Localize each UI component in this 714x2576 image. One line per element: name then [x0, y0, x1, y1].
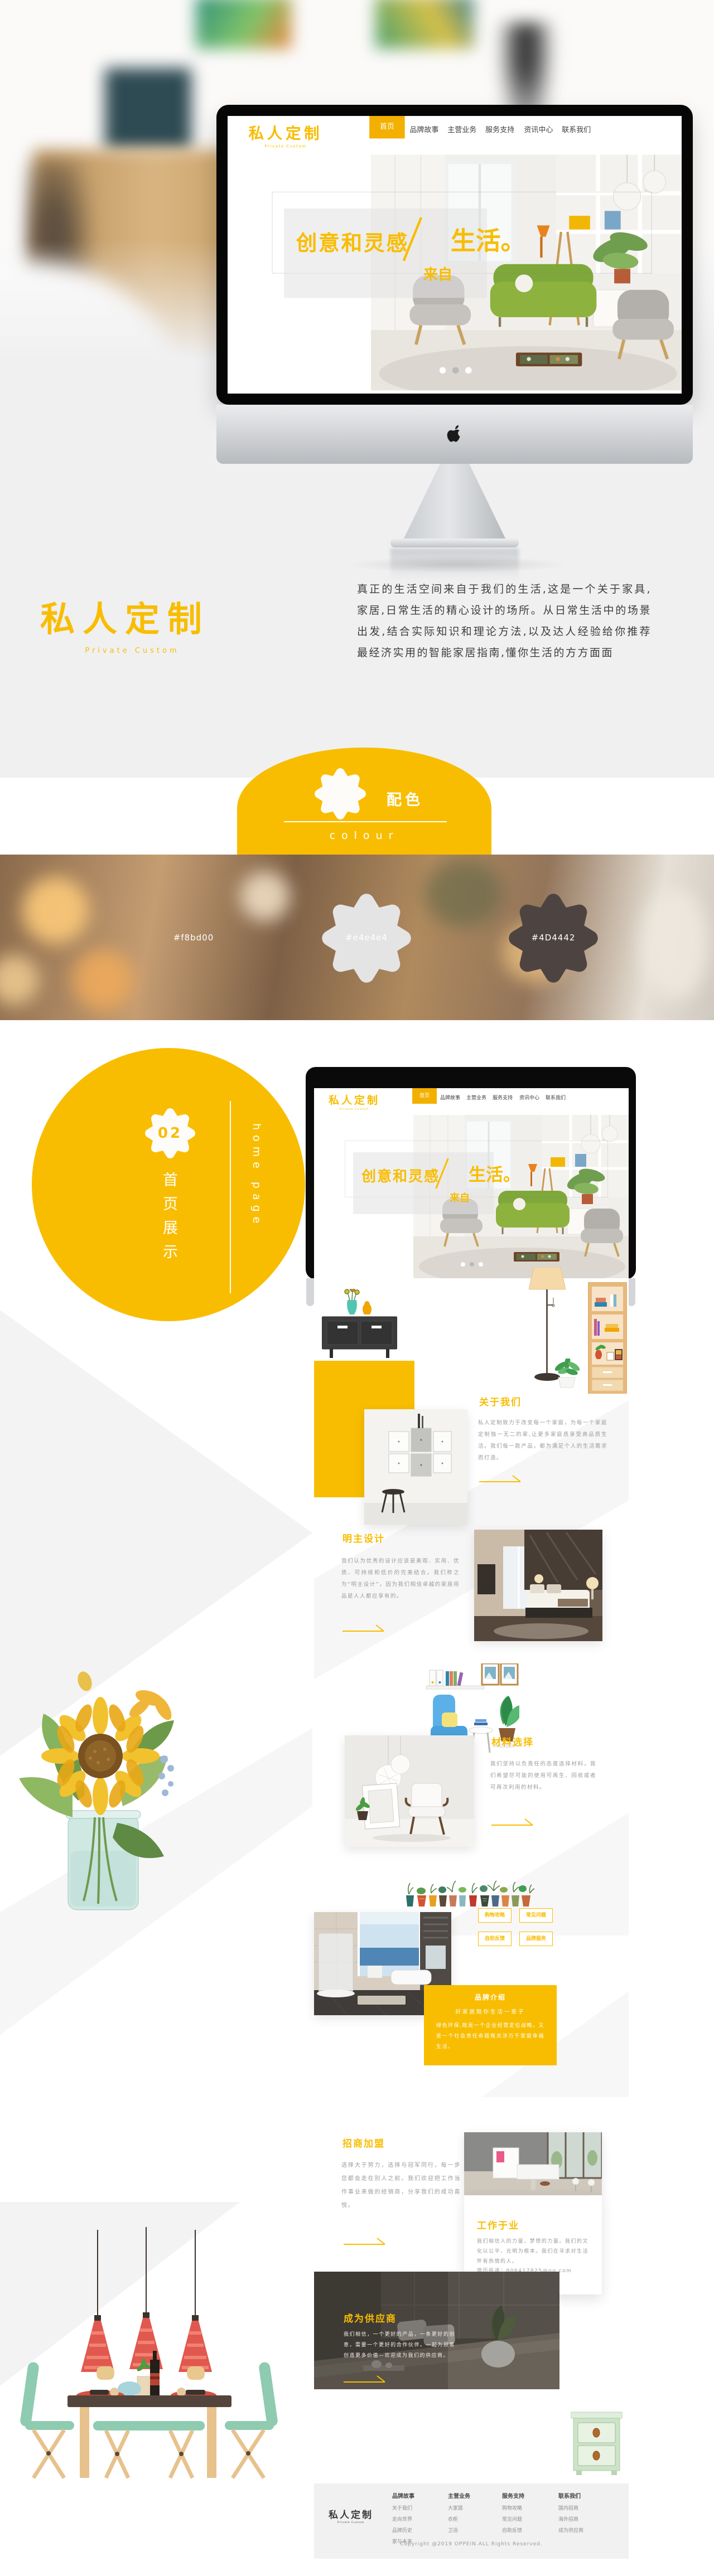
section-02-divider — [230, 1101, 231, 1293]
site-logo-text: 私人定制 — [329, 1092, 380, 1107]
footer-column-main-business: 主营业务 大家居 衣柜 卫浴 — [448, 2491, 470, 2536]
materials-photo — [345, 1735, 474, 1847]
nav-item-main-business[interactable]: 主营业务 — [466, 1094, 486, 1101]
sunflower-jar-illustration — [6, 1650, 178, 1929]
footer-link[interactable]: 卫浴 — [448, 2525, 470, 2536]
arrow-icon[interactable] — [342, 1624, 385, 1632]
footer-link[interactable]: 走向世界 — [392, 2514, 414, 2525]
hero-headline-part3: 生活。 — [469, 1161, 520, 1186]
footer-link[interactable]: 品牌历史 — [392, 2525, 414, 2536]
brand-intro-title: 品牌介绍 — [424, 1992, 557, 2002]
mock-site-top: 私人定制 Private Custom 首页 品牌故事 主营业务 服务支持 资讯… — [314, 1088, 629, 1281]
about-title: 关于我们 — [479, 1394, 522, 1408]
footer-column-title: 服务支持 — [502, 2491, 524, 2500]
arrow-icon[interactable] — [479, 1475, 522, 1483]
footer-logo-text: 私人定制 — [329, 2507, 373, 2521]
design-title: 明主设计 — [342, 1531, 385, 1545]
footer-link[interactable]: 成为供应商 — [558, 2525, 583, 2536]
footer-logo-subtext: Private Custom — [329, 2521, 373, 2524]
site-logo-subtext: Private Custom — [329, 1108, 380, 1111]
nav-item-news-center[interactable]: 资讯中心 — [519, 1094, 539, 1101]
footer-link[interactable]: 衣柜 — [448, 2514, 470, 2525]
homepage-mockup: 私人定制 Private Custom 首页 品牌故事 主营业务 服务支持 资讯… — [314, 1088, 629, 2559]
footer-copyright: Copyright @2019 OPPEIN.ALL Rights Reserv… — [314, 2541, 629, 2547]
arrow-icon[interactable] — [344, 2238, 386, 2245]
join-text: 选择大于努力，选择与冠军同行，每一步您都会走在别人之前。我们欢迎把工作当作事业来… — [341, 2159, 461, 2213]
site-footer: 私人定制 Private Custom 品牌故事 关于我们 走向世界 品牌历史 … — [314, 2483, 629, 2559]
supplier-section: 成为供应商 我们相信，一个更好的产品，一条更好的创意，需要一个更好的合作伙伴。一… — [314, 2272, 559, 2389]
brand-intro-subtitle: 好家居陪你生活一辈子 — [424, 2007, 557, 2015]
footer-column-title: 品牌故事 — [392, 2491, 414, 2500]
footer-logo[interactable]: 私人定制 Private Custom — [329, 2507, 373, 2524]
footer-link[interactable]: 自助反馈 — [502, 2525, 524, 2536]
nav-item-service-support[interactable]: 服务支持 — [493, 1094, 513, 1101]
footer-column-title: 联系我们 — [558, 2491, 583, 2500]
footer-column-service-support: 服务支持 购物攻略 常见问题 自助反馈 — [502, 2491, 524, 2536]
design-text: 我们认为优秀的设计应该是美观、实用、优质、可持续和低价的完美结合。我们称之为“明… — [341, 1555, 460, 1602]
work-text: 我们相信人的力量，梦想的力量。我们的文化以公平、光明为根本。我们在寻求对生活怀有… — [477, 2237, 588, 2267]
arrow-icon[interactable] — [491, 1818, 534, 1826]
footer-link[interactable]: 大家居 — [448, 2503, 470, 2514]
nav-item-brand-story[interactable]: 品牌故事 — [440, 1094, 460, 1101]
design-bedroom-photo — [474, 1530, 602, 1641]
service-button-faq[interactable]: 常见问题 — [519, 1908, 553, 1923]
supplier-title: 成为供应商 — [344, 2311, 397, 2325]
footer-link[interactable]: 国内招商 — [558, 2503, 583, 2514]
site-logo[interactable]: 私人定制 Private Custom — [329, 1092, 380, 1111]
carousel-dot-2[interactable] — [470, 1262, 474, 1267]
potted-plant-illustration — [551, 1359, 583, 1389]
monitor-bezel-tip-right — [628, 1278, 635, 1306]
supplier-text: 我们相信，一个更好的产品，一条更好的创意，需要一个更好的合作伙伴。一起为顾客创造… — [344, 2330, 455, 2361]
section-02-number: 02 — [143, 1125, 197, 1142]
hero-headline-part1: 创意和灵感 — [361, 1165, 440, 1186]
bookshelf-illustration — [588, 1282, 627, 1394]
carousel-dot-3[interactable] — [479, 1262, 483, 1267]
service-button-brand-service[interactable]: 品牌服务 — [519, 1932, 553, 1946]
join-office-photo — [464, 2132, 602, 2195]
section-02-circle: 02 首页展示 home page — [32, 1048, 305, 1321]
nightstand-illustration — [571, 2409, 623, 2476]
footer-column-brand-story: 品牌故事 关于我们 走向世界 品牌历史 家与未来 — [392, 2491, 414, 2548]
hero-headline-part2: 来自 — [450, 1190, 470, 1205]
nav-item-home[interactable]: 首页 — [412, 1088, 437, 1104]
service-button-feedback[interactable]: 自助反馈 — [478, 1932, 512, 1946]
brand-intro-box: 品牌介绍 好家居陪你生活一辈子 绿色环保,既是一个企业经营定位战略，又是一个社会… — [424, 1985, 557, 2065]
tv-cabinet-illustration — [322, 1289, 397, 1359]
section-02-title: 首页展示 — [158, 1172, 180, 1268]
dining-set-illustration — [8, 2199, 290, 2481]
plants-row-illustration — [404, 1879, 535, 1908]
footer-link[interactable]: 常见问题 — [502, 2514, 524, 2525]
arrow-icon[interactable] — [344, 2375, 386, 2383]
brand-intro-text: 绿色环保,既是一个企业经营定位战略，又是一个社会责任命题既关涉万千家庭幸福生活。 — [436, 2021, 544, 2053]
about-text: 私人定制致力于改变每一个家庭，为每一个家庭定制独一无二的家,让更多家庭质享受高品… — [478, 1417, 607, 1464]
section-02-subtitle: home page — [250, 1123, 263, 1228]
materials-title: 材料选择 — [491, 1734, 534, 1748]
about-photo — [364, 1409, 467, 1525]
carousel-dot-1[interactable] — [461, 1262, 465, 1267]
materials-text: 我们坚持以负责任的态度选择材料，我们希望尽可能的使用可再生、回收或者可再次利用的… — [490, 1758, 596, 1793]
footer-column-title: 主营业务 — [448, 2491, 470, 2500]
footer-link[interactable]: 海外招商 — [558, 2514, 583, 2525]
monitor-bezel-tip-left — [306, 1278, 314, 1306]
footer-column-contact: 联系我们 国内招商 海外招商 成为供应商 — [558, 2491, 583, 2536]
footer-link[interactable]: 关于我们 — [392, 2503, 414, 2514]
work-title: 工作于业 — [477, 2218, 519, 2231]
join-title: 招商加盟 — [342, 2136, 385, 2150]
design-presentation-canvas: 私人定制 Private Custom 首页 品牌故事 主营业务 服务支持 资讯… — [0, 0, 714, 2576]
nav-item-contact-us[interactable]: 联系我们 — [546, 1094, 566, 1101]
service-button-shopping-guide[interactable]: 购物攻略 — [478, 1908, 512, 1923]
footer-link[interactable]: 购物攻略 — [502, 2503, 524, 2514]
